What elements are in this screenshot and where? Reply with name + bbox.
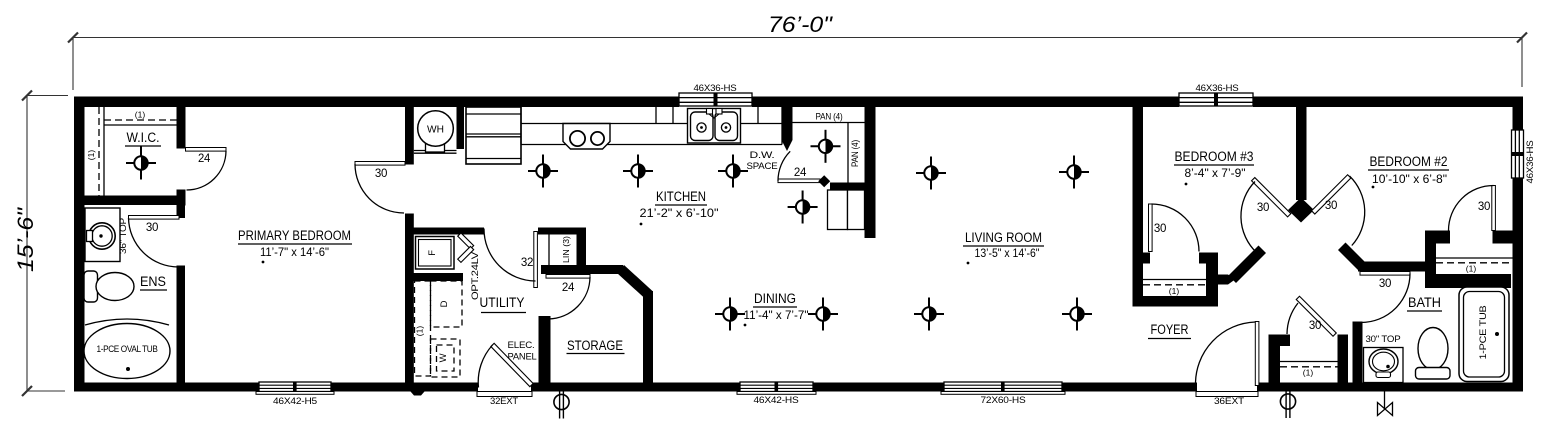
svg-text:D.W.: D.W.	[750, 150, 775, 161]
svg-text:8’-4" x 7’-9": 8’-4" x 7’-9"	[1185, 166, 1246, 180]
svg-text:30: 30	[1325, 200, 1337, 212]
svg-text:(1): (1)	[135, 110, 146, 120]
svg-text:(1): (1)	[415, 326, 425, 337]
svg-text:FOYER: FOYER	[1151, 322, 1189, 337]
svg-text:BEDROOM #3: BEDROOM #3	[1175, 149, 1254, 164]
svg-text:ELEC.: ELEC.	[508, 340, 535, 351]
svg-text:F: F	[427, 250, 438, 256]
svg-text:24: 24	[794, 167, 807, 179]
svg-text:BATH: BATH	[1408, 295, 1441, 310]
svg-text:11’-7" x 14’-6": 11’-7" x 14’-6"	[260, 245, 329, 259]
svg-text:LIN (3): LIN (3)	[561, 236, 571, 263]
svg-text:DINING: DINING	[754, 291, 796, 306]
svg-text:W.I.C.: W.I.C.	[127, 130, 160, 145]
svg-text:13’-5" x 14’-6": 13’-5" x 14’-6"	[975, 246, 1040, 260]
svg-text:ENS: ENS	[140, 274, 166, 289]
svg-text:SPACE: SPACE	[747, 161, 778, 172]
svg-text:46X36-HS: 46X36-HS	[694, 83, 737, 94]
svg-text:1-PCE OVAL TUB: 1-PCE OVAL TUB	[97, 344, 158, 354]
svg-text:BEDROOM #2: BEDROOM #2	[1370, 154, 1448, 169]
svg-text:21’-2" x 6’-10": 21’-2" x 6’-10"	[640, 206, 719, 220]
svg-text:72X60-HS: 72X60-HS	[981, 395, 1026, 406]
svg-text:PAN (4): PAN (4)	[850, 140, 861, 167]
svg-text:LIVING ROOM: LIVING ROOM	[965, 230, 1042, 245]
svg-text:24: 24	[198, 153, 211, 165]
svg-text:UTILITY: UTILITY	[480, 295, 525, 310]
svg-text:OPT.24LV: OPT.24LV	[470, 251, 481, 300]
svg-text:30: 30	[375, 168, 387, 180]
svg-text:32: 32	[521, 257, 533, 269]
svg-text:D: D	[439, 300, 450, 307]
svg-text:46X42-H5: 46X42-H5	[273, 396, 317, 407]
svg-text:24: 24	[562, 282, 575, 294]
svg-text:(1): (1)	[86, 150, 96, 161]
svg-text:30: 30	[1478, 201, 1490, 213]
svg-text:46X36-HS: 46X36-HS	[1196, 83, 1239, 94]
svg-text:36EXT: 36EXT	[1214, 396, 1244, 407]
svg-text:10’-10" x 6’-8": 10’-10" x 6’-8"	[1372, 172, 1447, 186]
svg-text:46X36-HS: 46X36-HS	[1525, 141, 1536, 184]
svg-text:30: 30	[146, 222, 158, 234]
svg-text:WH: WH	[427, 124, 444, 136]
svg-text:STORAGE: STORAGE	[567, 338, 623, 353]
svg-text:15’-6": 15’-6"	[13, 207, 38, 272]
svg-text:30: 30	[1154, 223, 1166, 235]
svg-text:KITCHEN: KITCHEN	[656, 189, 706, 204]
svg-text:PAN (4): PAN (4)	[816, 112, 843, 123]
svg-text:W: W	[438, 353, 449, 362]
svg-text:(1): (1)	[1169, 286, 1180, 296]
svg-text:(1): (1)	[1303, 368, 1314, 378]
svg-text:11’-4" x 7’-7": 11’-4" x 7’-7"	[744, 308, 809, 322]
svg-text:36" TOP: 36" TOP	[118, 218, 129, 254]
svg-text:76’-0": 76’-0"	[768, 12, 833, 37]
svg-text:30: 30	[1257, 202, 1269, 214]
svg-text:30: 30	[1379, 278, 1391, 290]
svg-text:1-PCE TUB: 1-PCE TUB	[1478, 306, 1489, 360]
svg-text:PRIMARY BEDROOM: PRIMARY BEDROOM	[238, 228, 351, 243]
svg-text:30" TOP: 30" TOP	[1366, 334, 1401, 345]
svg-text:30: 30	[1309, 320, 1321, 332]
svg-text:46X42-HS: 46X42-HS	[754, 395, 799, 406]
svg-text:(1): (1)	[1466, 264, 1477, 274]
svg-text:32EXT: 32EXT	[490, 396, 518, 407]
